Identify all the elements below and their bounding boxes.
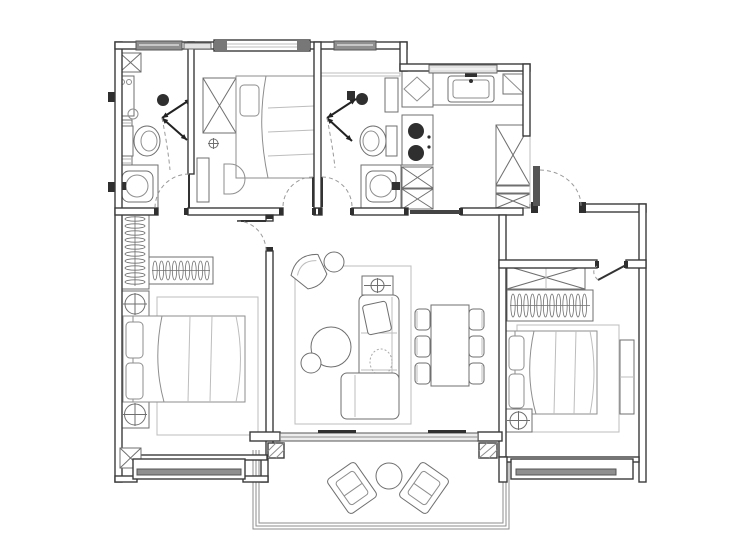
rect bbox=[297, 41, 309, 50]
wall-bedroom3-west bbox=[499, 215, 506, 457]
kitchen-base-cabinet-2 bbox=[402, 189, 433, 209]
master-pillow-2 bbox=[126, 363, 143, 399]
master-closet-horizontal bbox=[149, 257, 213, 284]
kitchen-corner-unit bbox=[402, 71, 433, 107]
wall-balcony-stub-right bbox=[478, 432, 502, 441]
master-nightstand-top bbox=[121, 291, 149, 317]
wall-band-1 bbox=[115, 208, 158, 215]
bath1-shower-door-arrow-2 bbox=[162, 118, 187, 140]
bedroom3-closet bbox=[507, 290, 593, 321]
balcony-lounge-chair-2 bbox=[398, 461, 450, 515]
wall-master-east bbox=[266, 251, 273, 457]
jamb-bedroom3-right bbox=[624, 261, 628, 268]
bedroom3-nightstand bbox=[505, 409, 532, 432]
bath1-shaft bbox=[120, 53, 141, 72]
wall-entry-south bbox=[581, 204, 646, 212]
wall-band-5 bbox=[461, 208, 523, 215]
window-bath2 bbox=[334, 41, 376, 50]
rect bbox=[398, 461, 450, 515]
bath1-shower-head bbox=[157, 94, 169, 106]
jamb-master-bottom bbox=[266, 247, 273, 251]
window-small-top bbox=[184, 43, 211, 49]
column-balcony-right bbox=[479, 443, 497, 458]
wall-bath1-east bbox=[188, 42, 194, 174]
floor-plan-page bbox=[0, 0, 740, 560]
wall-bedroom2-east bbox=[314, 42, 321, 208]
bedroom3-pillow-2 bbox=[509, 374, 524, 408]
bath2-shower-door-arrow-1 bbox=[327, 99, 356, 118]
rect bbox=[326, 461, 378, 515]
wall-balcony-stub-left bbox=[250, 432, 280, 441]
dining-chair-left-2 bbox=[415, 336, 430, 357]
balcony-round-table bbox=[376, 463, 402, 489]
kitchen-knob-1 bbox=[427, 135, 430, 138]
bedroom3-pillow-1 bbox=[509, 336, 524, 370]
rect bbox=[428, 430, 466, 433]
bath1-toilet-bowl bbox=[134, 126, 160, 156]
bay-window-master bbox=[133, 459, 245, 479]
wall-kitchen-right bbox=[523, 64, 530, 136]
bedroom2-ceiling-fixture bbox=[208, 138, 219, 149]
dining-table bbox=[431, 305, 469, 386]
bedroom2-pillow bbox=[240, 85, 259, 116]
door-entry-leaf bbox=[533, 166, 540, 206]
wall-band-4 bbox=[352, 208, 408, 215]
kitchen-tall-cabinet-shelf bbox=[496, 186, 530, 193]
jamb-bath1-left bbox=[154, 208, 158, 215]
master-closet-vertical bbox=[121, 213, 149, 289]
bath1-shower-door-trace bbox=[162, 118, 170, 170]
master-pillow-1 bbox=[126, 322, 143, 358]
jamb-master-top bbox=[266, 215, 273, 219]
jamb-bath2-right bbox=[350, 208, 354, 215]
floor-plan-svg bbox=[0, 0, 740, 560]
kitchen-faucet-dot bbox=[469, 79, 473, 83]
dining-chair-right-1 bbox=[469, 309, 484, 330]
living-chaise bbox=[341, 373, 399, 419]
door-kitchen-sliding bbox=[410, 210, 460, 214]
window-kitchen bbox=[429, 65, 497, 73]
dining-chair-right-2 bbox=[469, 336, 484, 357]
door-bath2-swing bbox=[322, 177, 352, 207]
wall-exterior-left bbox=[115, 42, 122, 482]
living-side-table bbox=[324, 252, 344, 272]
kitchen-burner-2 bbox=[408, 145, 424, 161]
jamb-bedroom2-left bbox=[279, 208, 283, 215]
rect bbox=[318, 430, 356, 433]
jamb-bath2-left bbox=[318, 208, 322, 215]
jamb-entry-right bbox=[579, 202, 586, 213]
door-entry-swing bbox=[540, 170, 581, 206]
balcony-lounge-chair-1 bbox=[326, 461, 378, 515]
door-master-swing bbox=[237, 221, 266, 251]
rect bbox=[214, 40, 310, 51]
wall-band-2 bbox=[188, 208, 283, 215]
wall-bedroom3-top-2 bbox=[626, 260, 646, 268]
wall-bedroom3-sw-stub bbox=[499, 457, 507, 482]
rect bbox=[215, 41, 227, 50]
kitchen-burner-1 bbox=[408, 123, 424, 139]
window-bedroom2 bbox=[214, 40, 310, 51]
bath2-valve bbox=[347, 91, 355, 100]
kitchen-base-cabinet-1 bbox=[402, 167, 433, 188]
dining-chair-right-3 bbox=[469, 363, 484, 384]
jamb-bath1-right bbox=[184, 208, 188, 215]
rect bbox=[516, 469, 616, 475]
bath2-shower-head bbox=[356, 93, 368, 105]
bay-window-bedroom3 bbox=[511, 459, 633, 479]
dining-chair-left-1 bbox=[415, 309, 430, 330]
bath2-faucet bbox=[392, 182, 400, 190]
column-balcony-left bbox=[268, 443, 284, 458]
door-bath1-swing bbox=[155, 174, 189, 208]
bath2-toilet-bowl bbox=[360, 126, 386, 156]
living-coffee-stool bbox=[301, 353, 321, 373]
balcony-sliding-door bbox=[280, 430, 478, 441]
bath2-shower-door-arrow-2 bbox=[327, 118, 352, 141]
kitchen-tall-cabinet-lower bbox=[496, 194, 530, 208]
bath2-shelf bbox=[385, 78, 398, 112]
rect bbox=[137, 469, 241, 475]
wall-exterior-right bbox=[639, 204, 646, 482]
wall-master-se-stub bbox=[243, 476, 268, 482]
bath2-bulkhead bbox=[321, 73, 400, 76]
master-nightstand-bottom bbox=[121, 401, 149, 428]
wall-bedroom3-top-1 bbox=[499, 260, 597, 268]
dining-chair-left-3 bbox=[415, 363, 430, 384]
bath2-toilet-tank bbox=[386, 126, 397, 156]
door-bedroom2-swing bbox=[283, 177, 313, 207]
bath1-toilet-tank bbox=[122, 126, 133, 156]
window-bath1 bbox=[136, 41, 182, 50]
bedroom2-desk bbox=[197, 158, 209, 202]
balcony-rail-mid bbox=[256, 450, 506, 526]
jamb-bedroom2-right bbox=[312, 208, 316, 215]
balcony-rail-outer bbox=[253, 450, 509, 529]
kitchen-knob-2 bbox=[427, 145, 430, 148]
jamb-kitchen-left bbox=[404, 208, 408, 215]
door-bedroom3-leaf bbox=[598, 265, 626, 280]
living-ceiling-fixture bbox=[362, 276, 393, 295]
bedroom2-wardrobe bbox=[203, 78, 236, 133]
